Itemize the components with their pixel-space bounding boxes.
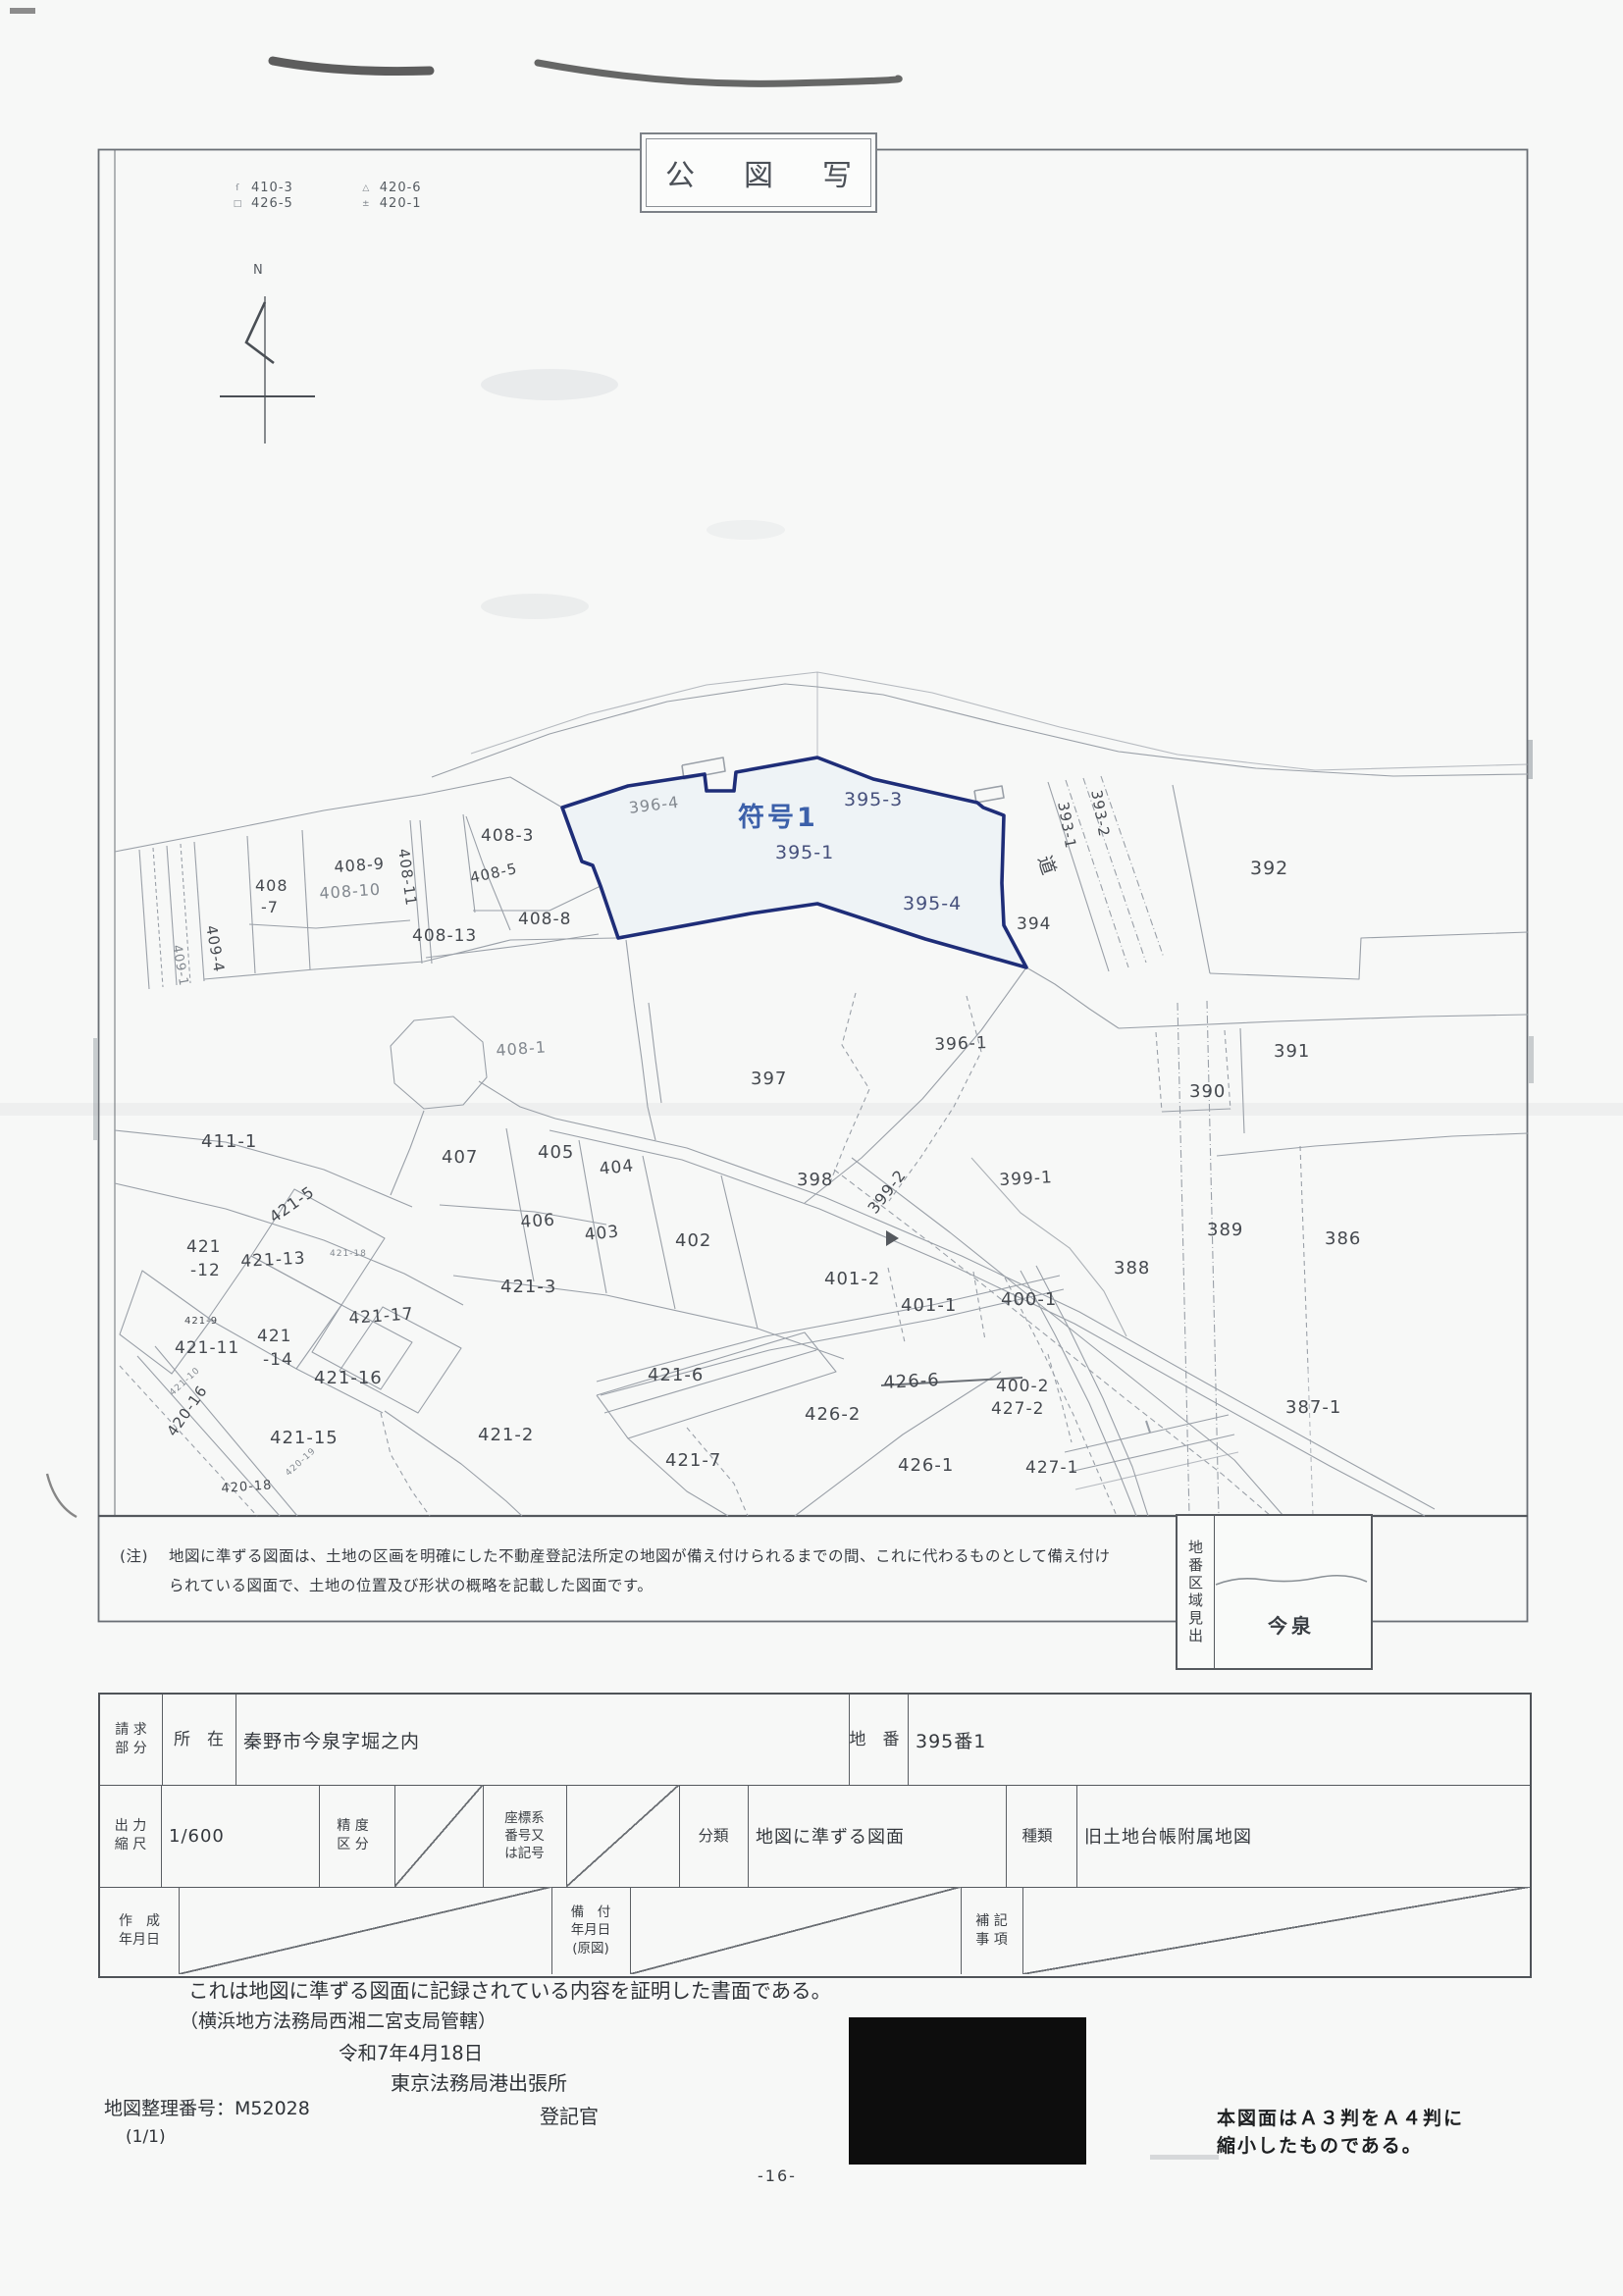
attached-date-empty	[630, 1887, 962, 1974]
district-locator-line	[1214, 1516, 1369, 1668]
kind-value: 旧土地台帳附属地図	[1076, 1785, 1538, 1887]
district-name: 今泉	[1268, 1610, 1315, 1639]
class-value: 地図に準ずる図面	[748, 1785, 1007, 1887]
legend-item: ±420-1	[360, 196, 422, 212]
lot-value: 395番1	[908, 1695, 1538, 1785]
paper-size-note-line1: 本図面はＡ３判をＡ４判に	[1217, 2106, 1464, 2133]
legend-item: □426-5	[232, 196, 293, 212]
remarks-empty	[1022, 1887, 1530, 1974]
coord-system-value-empty	[566, 1785, 680, 1887]
district-index-header-text: 地番区域見出	[1185, 1539, 1206, 1645]
legend-sheet-number: 420-1	[380, 196, 422, 212]
location-value: 秦野市今泉字堀之内	[236, 1695, 850, 1785]
document-title-box: 公 図 写	[640, 132, 877, 213]
legend-sheet-number: 410-3	[251, 181, 293, 196]
precision-value-empty	[394, 1785, 484, 1887]
north-arrow-icon	[220, 296, 315, 444]
highlighted-parcel-395-1	[562, 757, 1026, 967]
precision-label: 精 度 区 分	[337, 1817, 368, 1854]
kind-label: 種類	[1021, 1826, 1052, 1847]
coord-system-label: 座標系 番号又 は記号	[504, 1809, 545, 1863]
legend-marker-icon: □	[232, 196, 243, 212]
paper-size-note: 本図面はＡ３判をＡ４判に 縮小したものである。	[1217, 2106, 1464, 2160]
note-line-2: られている図面で、土地の位置及び形状の概略を記載した図面です。	[169, 1574, 653, 1595]
scanned-cadastral-document: { "document": { "title": "公 図 写", "page_…	[0, 0, 1623, 2296]
certificate-table: 請 求 部 分 所 在 秦野市今泉字堀之内 地 番 395番1 出 力 縮 尺 …	[98, 1693, 1532, 1978]
sheet-count: (1/1)	[126, 2127, 166, 2147]
page-number: -16-	[758, 2166, 797, 2185]
class-label: 分類	[698, 1826, 728, 1847]
attached-date-label: 備 付 年月日 (原図)	[571, 1904, 611, 1957]
map-ref-number: 地図整理番号：M52028	[104, 2094, 310, 2120]
certification-date: 令和7年4月18日	[339, 2037, 483, 2065]
legend-sheet-number: 420-6	[380, 181, 422, 196]
legend-item: ſ410-3	[232, 181, 293, 196]
request-part-label: 請 求 部 分	[115, 1721, 146, 1758]
jurisdiction-note: （横浜地方法務局西湘二宮支局管轄）	[180, 2007, 497, 2033]
title-inner-border: 公 図 写	[646, 138, 871, 207]
issuing-office: 東京法務局港出張所	[391, 2067, 567, 2096]
legend-marker-icon: ±	[360, 196, 372, 212]
certification-statement: これは地図に準ずる図面に記録されている内容を証明した書面である。	[188, 1974, 831, 2004]
legend-marker-icon: △	[360, 181, 372, 196]
registrar-seal-redaction	[849, 2017, 1086, 2165]
district-index-box: 地番区域見出 今泉	[1176, 1514, 1373, 1670]
sheet-reference-legend: ſ410-3□426-5△420-6±420-1	[232, 181, 422, 212]
note-marker: (注)	[120, 1544, 148, 1566]
scale-label: 出 力 縮 尺	[115, 1817, 146, 1854]
document-title: 公 図 写	[655, 151, 862, 194]
location-label: 所 在	[174, 1729, 224, 1751]
created-date-empty	[179, 1887, 552, 1974]
north-label: N	[253, 263, 263, 278]
remarks-label: 補 記 事 項	[975, 1912, 1007, 1950]
table-row-classification: 出 力 縮 尺 1/600 精 度 区 分 座標系 番号又 は記号 分類 地図に…	[100, 1785, 1530, 1888]
lot-label: 地 番	[850, 1729, 900, 1751]
legend-marker-icon: ſ	[232, 181, 243, 196]
paper-size-note-line2: 縮小したものである。	[1217, 2133, 1464, 2161]
road-arrow-mark	[886, 1230, 899, 1246]
registrar-title: 登記官	[540, 2101, 599, 2129]
district-index-header: 地番区域見出	[1178, 1516, 1215, 1668]
legend-sheet-number: 426-5	[251, 196, 293, 212]
note-line-1: 地図に準ずる図面は、土地の区画を明確にした不動産登記法所定の地図が備え付けられる…	[169, 1544, 1111, 1566]
table-row-dates: 作 成 年月日 備 付 年月日 (原図) 補 記 事 項	[100, 1887, 1530, 1974]
legend-item: △420-6	[360, 181, 422, 196]
created-date-label: 作 成 年月日	[119, 1912, 160, 1950]
table-row-location: 請 求 部 分 所 在 秦野市今泉字堀之内 地 番 395番1	[100, 1695, 1530, 1786]
scale-value: 1/600	[161, 1785, 320, 1887]
